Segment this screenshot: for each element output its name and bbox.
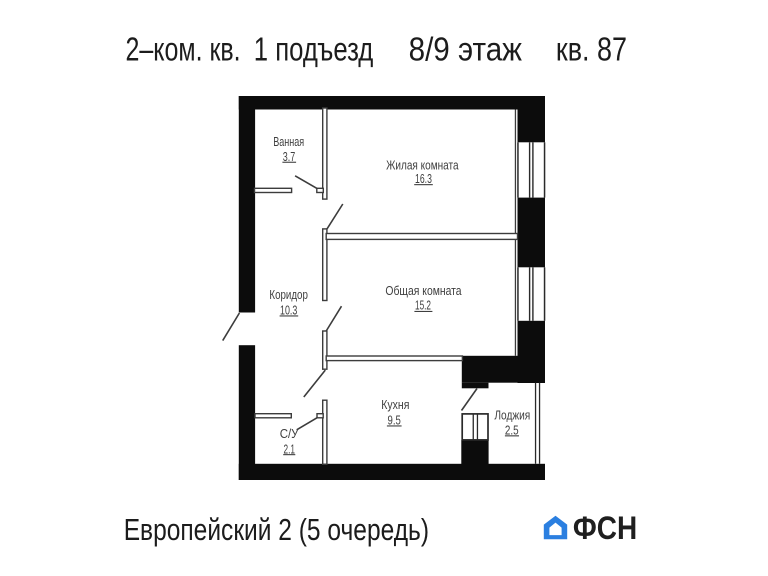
svg-text:8/9 этаж: 8/9 этаж — [409, 31, 522, 68]
svg-text:16.3: 16.3 — [415, 171, 432, 186]
svg-text:Лоджия: Лоджия — [494, 408, 530, 423]
svg-text:кв. 87: кв. 87 — [556, 31, 627, 68]
svg-text:2.1: 2.1 — [284, 441, 296, 456]
svg-text:ФСН: ФСН — [573, 510, 637, 546]
svg-text:С/У: С/У — [280, 426, 299, 441]
svg-text:2.5: 2.5 — [505, 422, 519, 437]
svg-text:3.7: 3.7 — [283, 149, 296, 164]
svg-text:Кухня: Кухня — [381, 397, 409, 412]
svg-text:Общая комната: Общая комната — [385, 283, 462, 298]
svg-text:9.5: 9.5 — [388, 413, 401, 428]
svg-text:10.3: 10.3 — [280, 303, 297, 318]
svg-text:15.2: 15.2 — [415, 298, 431, 313]
svg-text:1 подъезд: 1 подъезд — [254, 31, 374, 68]
svg-text:Ванная: Ванная — [273, 134, 304, 149]
svg-text:Европейский 2 (5 очередь): Европейский 2 (5 очередь) — [124, 512, 429, 547]
svg-text:2–ком. кв.: 2–ком. кв. — [126, 31, 241, 68]
svg-text:Коридор: Коридор — [269, 287, 308, 302]
